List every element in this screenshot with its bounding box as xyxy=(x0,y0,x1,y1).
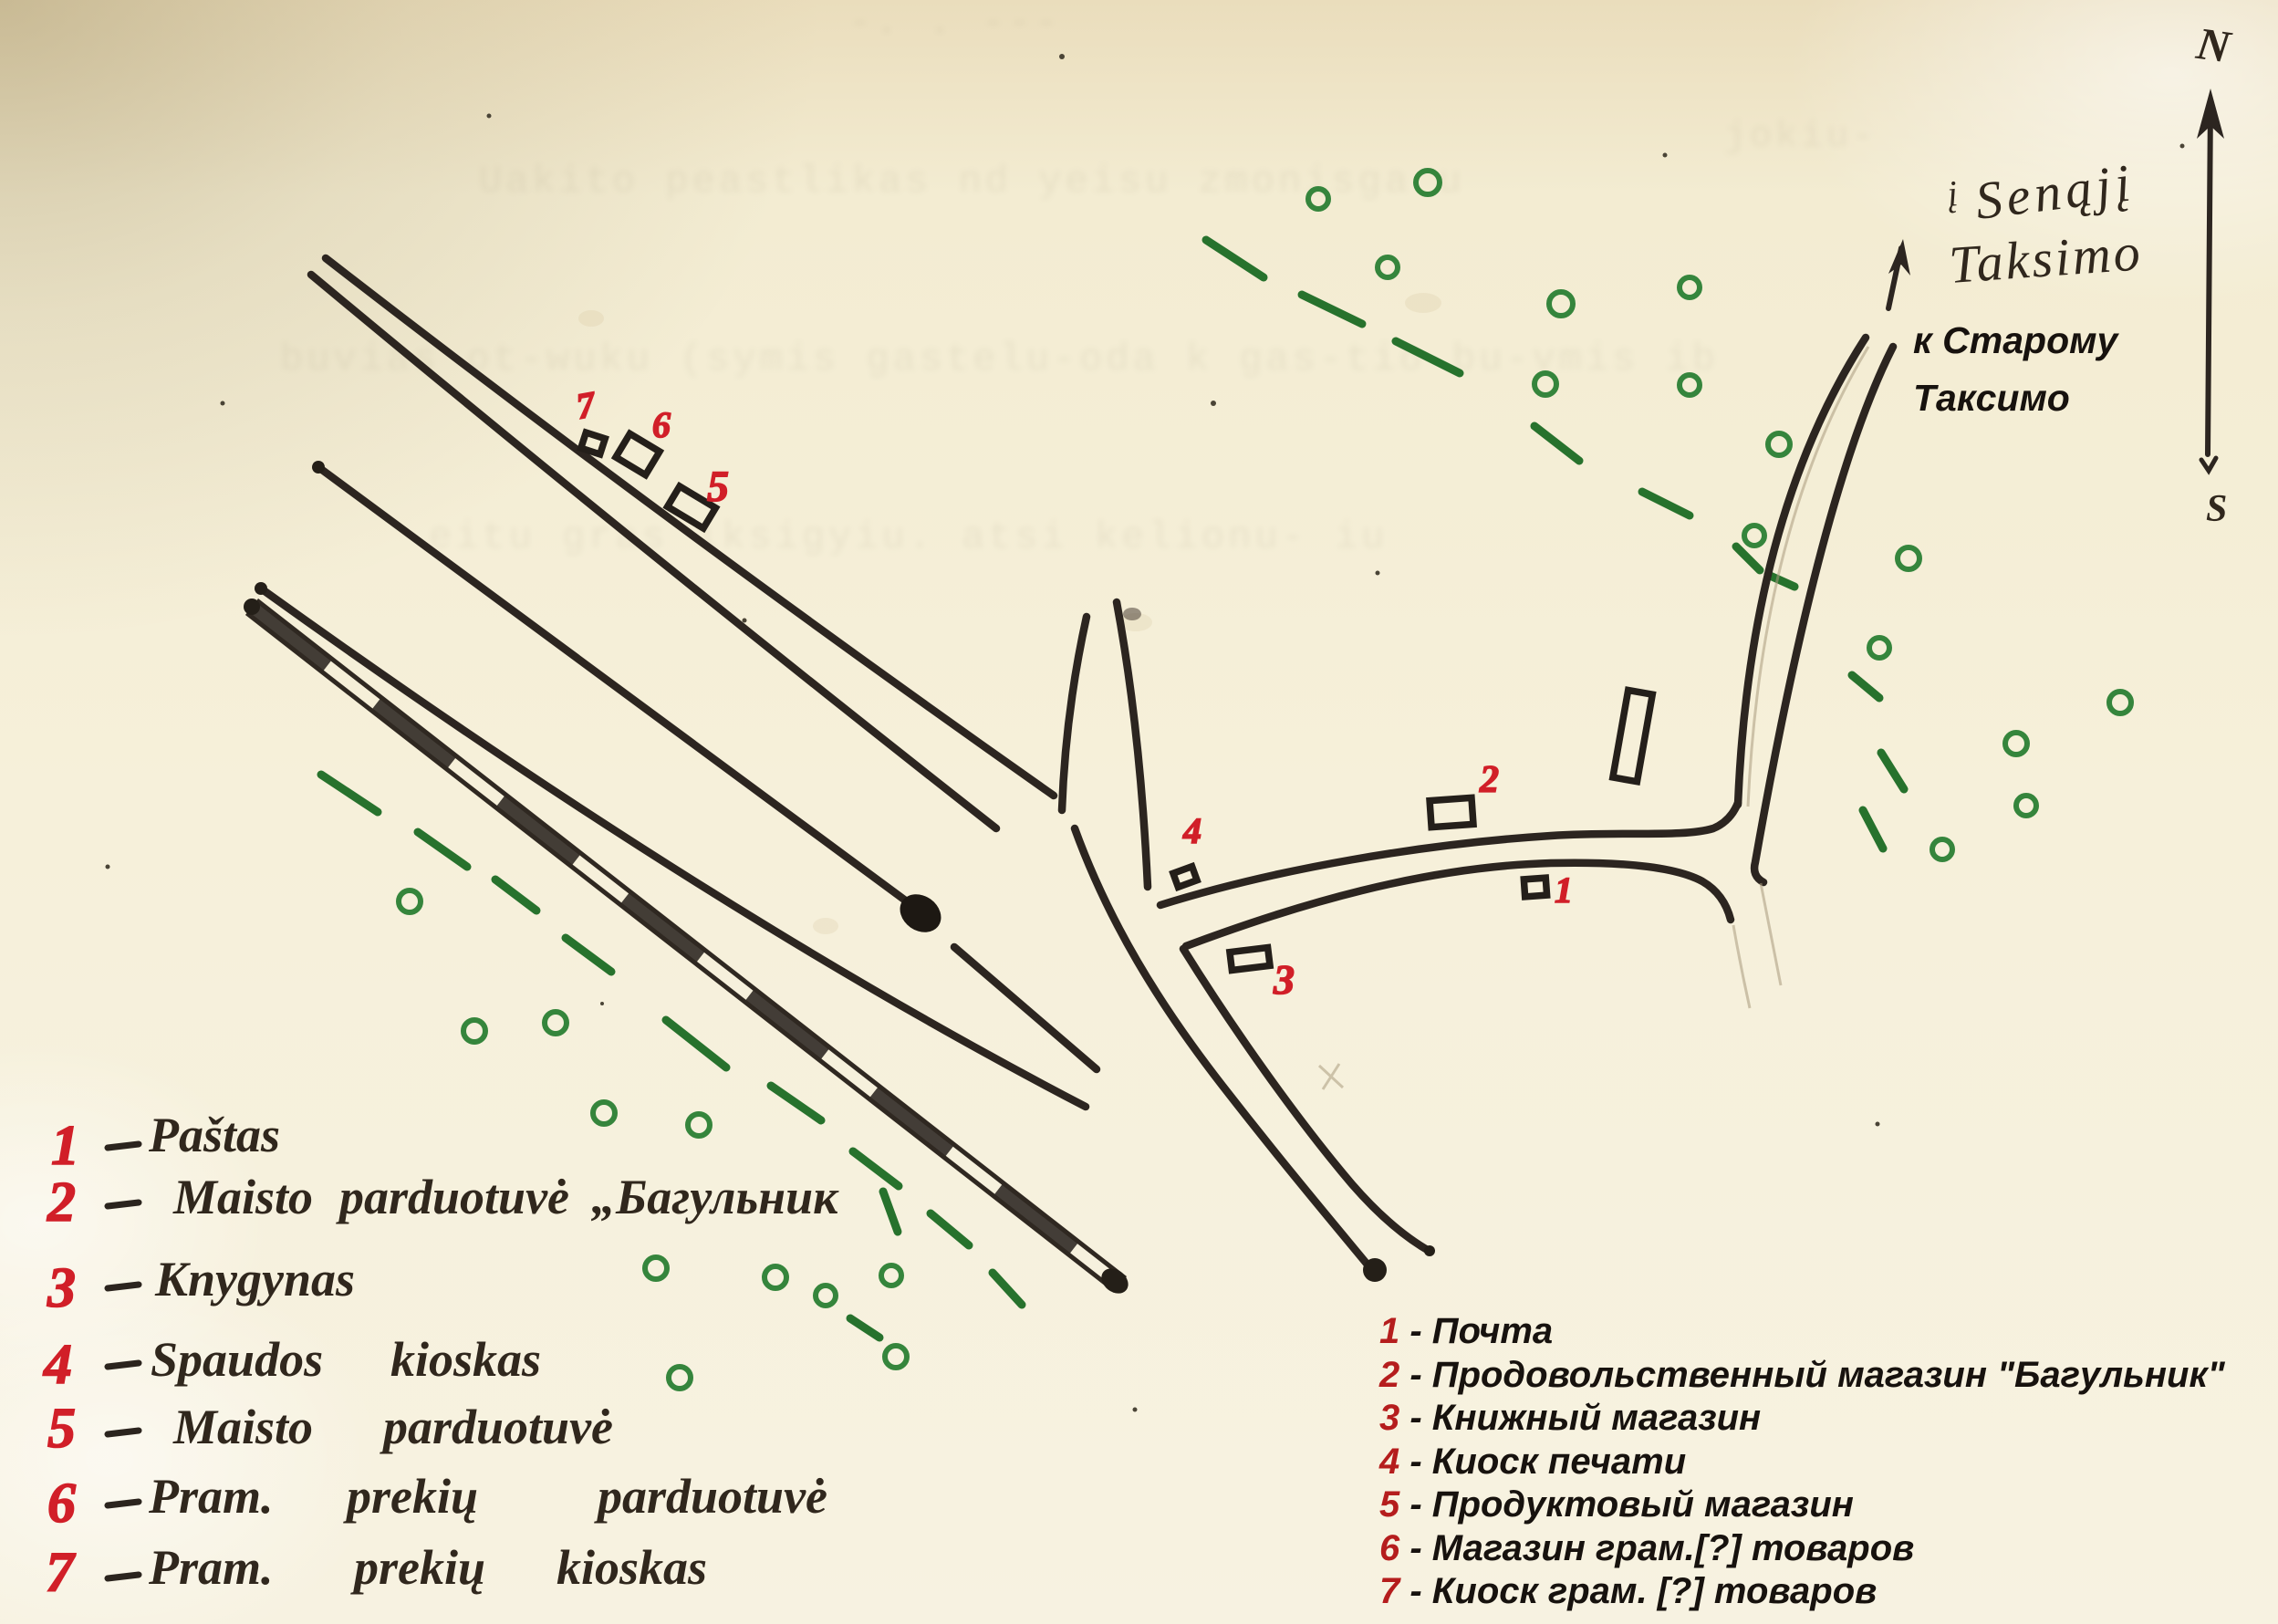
svg-text:Knygynas: Knygynas xyxy=(154,1252,355,1306)
svg-text:5 - Продуктовый магазин: 5 - Продуктовый магазин xyxy=(1379,1484,1854,1525)
svg-text:2: 2 xyxy=(1479,759,1499,801)
svg-text:Uakito peastlikas nd yeisu zmo: Uakito peastlikas nd yeisu zmonisga u xyxy=(479,160,1465,203)
svg-text:1: 1 xyxy=(1555,869,1573,911)
svg-text:5: 5 xyxy=(707,463,729,511)
svg-text:2: 2 xyxy=(47,1171,76,1234)
svg-text:-. . ---: -. . --- xyxy=(848,1,1062,45)
svg-text:6: 6 xyxy=(47,1473,76,1535)
svg-text:Pram.prekiųkioskas: Pram.prekiųkioskas xyxy=(148,1540,707,1595)
svg-text:Paštas: Paštas xyxy=(148,1108,280,1162)
svg-text:7 - Киоск грам. [?] товаров: 7 - Киоск грам. [?] товаров xyxy=(1379,1571,1877,1611)
svg-text:4: 4 xyxy=(1182,810,1201,851)
svg-text:к Старому: к Старому xyxy=(1913,319,2119,361)
svg-text:1 - Почта: 1 - Почта xyxy=(1379,1311,1553,1351)
svg-text:buvias ot-wuku (symis gastelu-: buvias ot-wuku (symis gastelu-oda k gas-… xyxy=(280,338,1719,381)
svg-text:1: 1 xyxy=(51,1115,79,1177)
svg-text:jokiu-: jokiu- xyxy=(1724,117,1878,158)
svg-text:Maistoparduotuvė: Maistoparduotuvė xyxy=(172,1400,613,1454)
svg-text:7: 7 xyxy=(46,1542,77,1604)
svg-text:3 - Книжный магазин: 3 - Книжный магазин xyxy=(1379,1398,1761,1438)
svg-text:4 - Киоск печати: 4 - Киоск печати xyxy=(1378,1442,1686,1482)
svg-text:Maistoparduotuvė„Багульник: Maistoparduotuvė„Багульник xyxy=(172,1170,839,1224)
svg-text:3: 3 xyxy=(1273,956,1295,1003)
svg-text:2 - Продовольственный магазин: 2 - Продовольственный магазин "Багульник… xyxy=(1378,1355,2226,1395)
svg-text:eitu gras iksigyiu. atsi kelio: eitu gras iksigyiu. atsi kelionu- iu xyxy=(429,515,1388,559)
svg-text:5: 5 xyxy=(47,1398,76,1460)
svg-text:4: 4 xyxy=(43,1334,72,1396)
svg-text:Таксимо: Таксимо xyxy=(1913,377,2070,419)
svg-text:6 - Магазин грам.[?] товаров: 6 - Магазин грам.[?] товаров xyxy=(1379,1528,1914,1568)
svg-text:6: 6 xyxy=(652,404,671,445)
svg-text:S: S xyxy=(2206,488,2227,530)
svg-text:3: 3 xyxy=(47,1257,76,1319)
